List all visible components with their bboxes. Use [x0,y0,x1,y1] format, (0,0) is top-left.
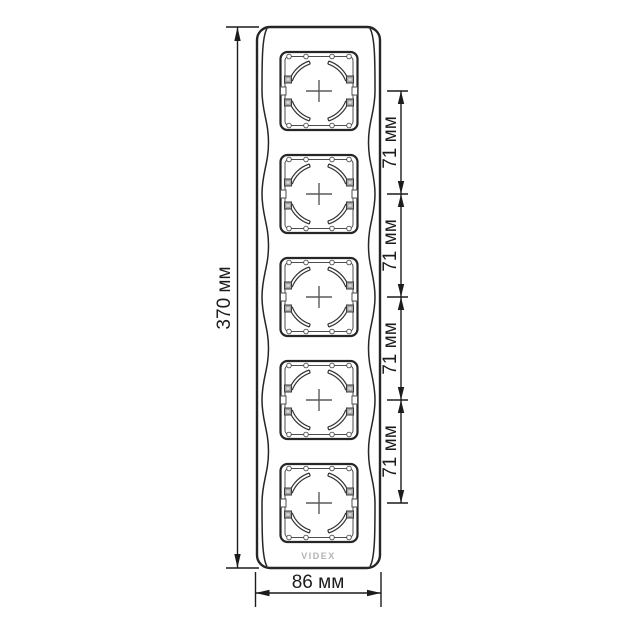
socket-window-1 [281,52,358,130]
arrowhead-down [398,490,404,503]
arrowhead-up [398,194,404,207]
spacing-label-3: 71 мм [380,322,401,375]
arrowhead-right [367,590,381,596]
arrowhead-left [256,590,270,596]
drawing-canvas: VIDEX 370 мм 71 мм 71 мм 71 мм 71 мм [0,0,630,630]
brand-logo: VIDEX [301,551,336,561]
spacing-label-2: 71 мм [380,219,401,272]
socket-window-3 [281,258,358,336]
width-label: 86 мм [292,572,345,593]
arrowhead-down [398,181,404,194]
arrowhead-down [398,387,404,400]
socket-window-4 [281,361,358,439]
frame-plate: VIDEX [257,27,380,568]
arrowhead-up [398,91,404,104]
arrowhead-up [398,400,404,413]
arrowhead-up [398,297,404,310]
height-label: 370 мм [214,266,235,329]
arrowhead-down [398,284,404,297]
spacing-label-1: 71 мм [380,116,401,169]
spacing-label-4: 71 мм [380,425,401,478]
arrowhead-up [234,27,240,41]
socket-window-2 [281,155,358,233]
technical-drawing: VIDEX 370 мм 71 мм 71 мм 71 мм 71 мм [0,0,630,630]
arrowhead-down [234,554,240,568]
socket-window-5 [281,464,358,542]
